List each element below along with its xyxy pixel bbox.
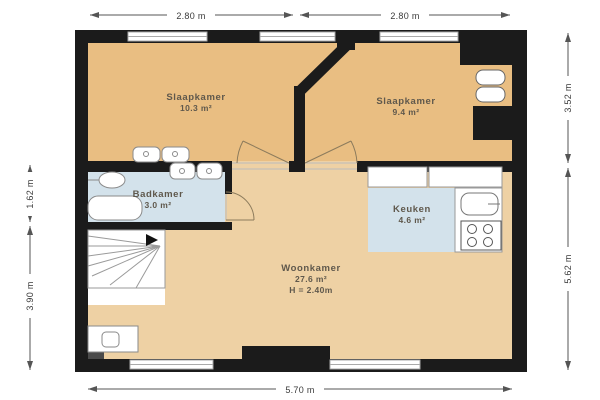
radiator-icon-1 (476, 70, 505, 85)
dim-label-top-left: 2.80 m (176, 11, 205, 21)
stove-icon (461, 221, 501, 250)
toilet-icon (102, 332, 119, 347)
bedroom-divider-wall (294, 86, 305, 166)
keuken-name: Keuken (393, 204, 431, 215)
sink-drain-2 (207, 169, 212, 174)
floor-plan: Slaapkamer 10.3 m² Slaapkamer 9.4 m² Bad… (0, 0, 600, 400)
bathroom-right-wall (225, 161, 232, 194)
washbasin-icon (99, 172, 125, 188)
sink-drain-1 (180, 169, 185, 174)
woonkamer-area: 27.6 m² (295, 274, 327, 284)
slaapkamer1-area: 10.3 m² (180, 103, 212, 113)
bathroom-bottom-wall (75, 222, 232, 230)
window-top-3 (380, 32, 458, 41)
slaapkamer2-name: Slaapkamer (376, 96, 435, 107)
window-top-2 (260, 32, 335, 41)
woonkamer-height: H = 2.40m (289, 285, 333, 295)
dim-label-right-upper: 3.52 m (563, 83, 573, 112)
kitchen-counter-1 (368, 167, 427, 187)
sink-drain-3 (144, 152, 149, 157)
dim-label-left-upper: 1.62 m (25, 179, 35, 208)
dim-label-bottom: 5.70 m (285, 385, 314, 395)
door-center-post (289, 161, 305, 172)
woonkamer-name: Woonkamer (281, 263, 341, 274)
kitchen-counter-2 (429, 167, 502, 187)
dim-label-right-lower: 5.62 m (563, 254, 573, 283)
wall-corner-block (460, 43, 512, 65)
window-bottom-1 (130, 360, 213, 369)
divider-anchor (337, 43, 355, 50)
slaapkamer2-area: 9.4 m² (393, 107, 420, 117)
dim-label-left-lower: 3.90 m (25, 281, 35, 310)
wall-left (75, 30, 88, 372)
chimney-right (473, 106, 512, 140)
badkamer-area: 3.0 m² (145, 200, 172, 210)
radiator-icon-2 (476, 87, 505, 102)
wall-right (512, 30, 527, 372)
floorplan-page: Slaapkamer 10.3 m² Slaapkamer 9.4 m² Bad… (0, 0, 600, 400)
sink-drain-4 (173, 152, 178, 157)
keuken-area: 4.6 m² (399, 215, 426, 225)
window-bottom-2 (330, 360, 420, 369)
dim-label-top-right: 2.80 m (390, 11, 419, 21)
window-top-1 (128, 32, 207, 41)
chimney-bottom (242, 346, 330, 360)
slaapkamer1-name: Slaapkamer (166, 92, 225, 103)
badkamer-name: Badkamer (133, 189, 184, 200)
